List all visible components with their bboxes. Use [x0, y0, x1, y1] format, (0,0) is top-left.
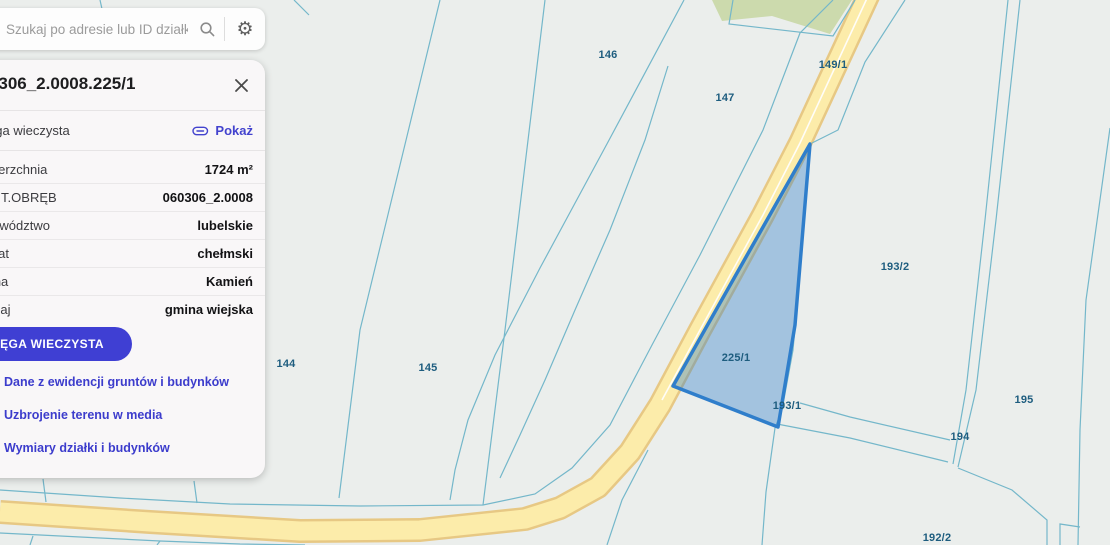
show-register-link[interactable]: Pokaż	[192, 123, 253, 138]
row-county-label: Powiat	[0, 246, 197, 261]
parcel-id-title: 060306_2.0008.225/1	[0, 74, 135, 94]
row-commune-label: Gmina	[0, 274, 206, 289]
search-input[interactable]	[4, 21, 190, 38]
row-obreb-label: IDENT.OBRĘB	[0, 190, 163, 205]
parcel-label-145: 145	[419, 362, 438, 374]
row-obreb: IDENT.OBRĘB 060306_2.0008	[0, 184, 265, 212]
forest-area	[712, 0, 852, 34]
panel-links: Dane z ewidencji gruntów i budynków Uzbr…	[0, 372, 265, 471]
parcel-label-146: 146	[599, 49, 618, 61]
parcel-label-195: 195	[1015, 394, 1034, 406]
settings-button[interactable]: ⚙	[225, 12, 265, 46]
row-commune: Gmina Kamień	[0, 268, 265, 296]
row-voivodeship-value: lubelskie	[197, 218, 253, 233]
parcel-label-193-1: 193/1	[773, 400, 802, 412]
selected-parcel-polygon[interactable]	[673, 144, 810, 427]
search-button[interactable]	[190, 12, 224, 46]
row-commune-value: Kamień	[206, 274, 253, 289]
parcel-label-144: 144	[277, 358, 296, 370]
row-voivodeship: Województwo lubelskie	[0, 212, 265, 240]
parcel-label-147: 147	[716, 92, 735, 104]
parcel-label-clipped-top: 148	[463, 0, 482, 2]
show-register-label: Pokaż	[215, 123, 253, 138]
row-area-label: Powierzchnia	[0, 162, 205, 177]
link-utilities[interactable]: Uzbrojenie terenu w media	[4, 405, 162, 425]
parcel-label-192-2: 192/2	[923, 532, 952, 544]
row-county: Powiat chełmski	[0, 240, 265, 268]
map-viewport[interactable]: 146 147 149/1 193/2 144 145 225/1 193/1 …	[0, 0, 1110, 545]
land-register-button[interactable]: KSIĘGA WIECZYSTA	[0, 327, 132, 361]
attribute-rows: Powierzchnia 1724 m² IDENT.OBRĘB 060306_…	[0, 156, 265, 323]
row-county-value: chełmski	[197, 246, 253, 261]
parcel-label-clipped-top-right: 193	[1058, 0, 1077, 2]
row-area-value: 1724 m²	[205, 162, 253, 177]
row-obreb-value: 060306_2.0008	[163, 190, 253, 205]
parcel-label-149-1: 149/1	[819, 59, 848, 71]
row-kind: Rodzaj gmina wiejska	[0, 296, 265, 323]
close-icon	[234, 78, 249, 93]
parcel-info-panel: 060306_2.0008.225/1 Księga wieczysta	[0, 60, 265, 478]
close-button[interactable]	[231, 75, 251, 95]
register-label: Księga wieczysta	[0, 123, 192, 138]
row-kind-value: gmina wiejska	[165, 302, 253, 317]
parcel-label-225-1: 225/1	[722, 352, 751, 364]
search-bar: ⚙	[0, 8, 265, 50]
search-icon	[199, 21, 216, 38]
paperclip-icon	[192, 126, 209, 136]
gear-icon: ⚙	[236, 18, 253, 41]
register-row: Księga wieczysta Pokaż	[0, 111, 265, 151]
parcel-label-193-2: 193/2	[881, 261, 910, 273]
row-area: Powierzchnia 1724 m²	[0, 156, 265, 184]
row-voivodeship-label: Województwo	[0, 218, 197, 233]
link-dimensions[interactable]: Wymiary działki i budynków	[4, 438, 170, 458]
link-land-records[interactable]: Dane z ewidencji gruntów i budynków	[4, 372, 229, 392]
panel-header: 060306_2.0008.225/1	[0, 60, 265, 111]
row-kind-label: Rodzaj	[0, 302, 165, 317]
parcel-label-194: 194	[951, 431, 970, 443]
